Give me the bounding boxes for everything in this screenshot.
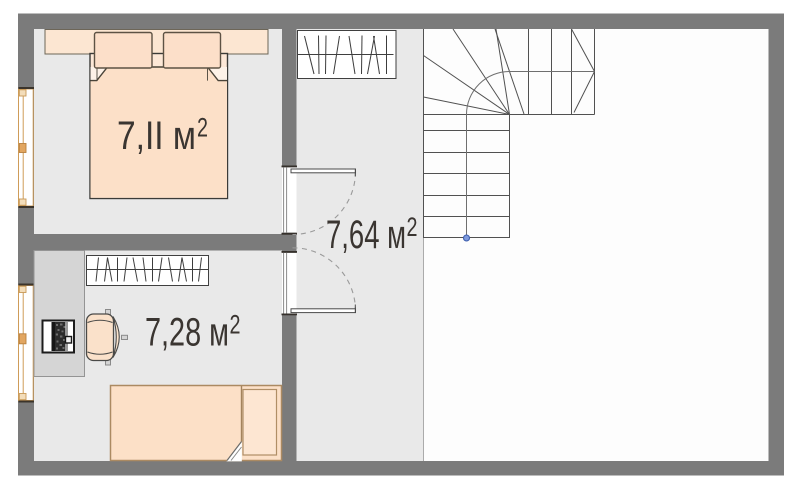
svg-text:7,28 м: 7,28 м [145,311,229,355]
svg-text:7,64 м: 7,64 м [326,213,406,257]
svg-text:2: 2 [407,212,418,242]
svg-text:2: 2 [230,310,241,340]
svg-text:7,II м: 7,II м [117,114,196,158]
svg-text:2: 2 [197,113,208,143]
